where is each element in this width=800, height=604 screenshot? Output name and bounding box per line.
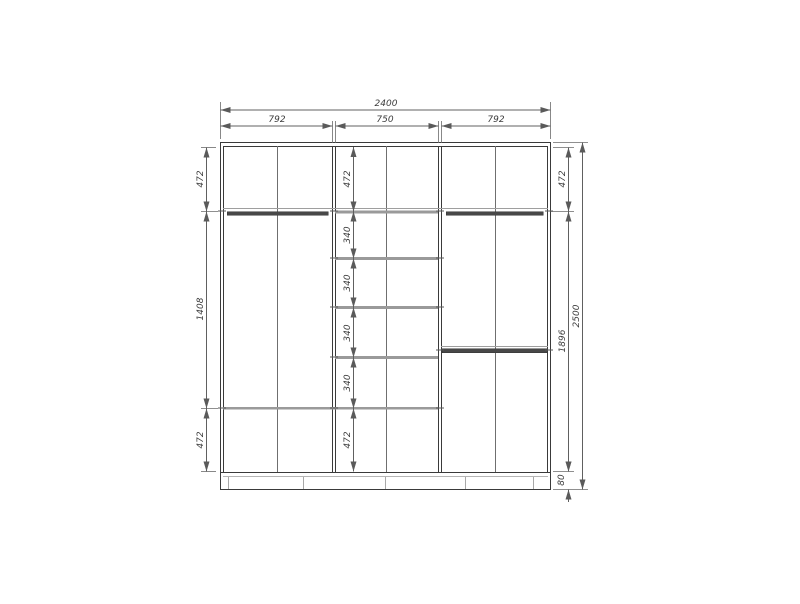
dim-left-section-width-label: 792 (268, 115, 285, 125)
dim-plinth-height-label: 80 (557, 474, 567, 486)
dim-center-6-label: 472 (343, 431, 353, 448)
middle-shelf-1 (335, 211, 438, 214)
cabinet-body-outline (220, 142, 551, 490)
dim-middle-section-width-label: 750 (376, 115, 393, 125)
dim-overall-width-label: 2400 (375, 99, 398, 109)
plinth-feet-ticks (229, 477, 534, 489)
dimension-center-column: 472 340 340 340 340 472 (343, 147, 354, 472)
dim-right-middle-label: 1896 (558, 329, 568, 352)
shelves-and-rods (223, 209, 548, 410)
right-mid-rod (442, 349, 547, 353)
dim-right-section-width-label: 792 (487, 115, 504, 125)
middle-shelf-2 (335, 257, 438, 260)
dimension-left-column: 472 1408 472 (196, 148, 218, 472)
dimension-overall-height: 2500 (572, 143, 583, 490)
panel-joint-ticks (218, 211, 553, 408)
dim-center-5-label: 340 (343, 374, 353, 391)
dimension-top-width: 2400 792 750 792 (221, 99, 551, 143)
left-hanging-rod (227, 212, 328, 216)
dim-left-bottom-label: 472 (196, 431, 206, 448)
dim-overall-height-label: 2500 (572, 304, 582, 327)
middle-shelf-3 (335, 306, 438, 309)
dim-left-top-label: 472 (196, 170, 206, 187)
dim-right-top-label: 472 (558, 170, 568, 187)
drawing-canvas: 2400 792 750 792 472 1408 472 472 340 34… (0, 0, 800, 600)
right-hanging-rod (446, 212, 543, 216)
dim-center-1-label: 472 (343, 170, 353, 187)
dim-center-4-label: 340 (343, 324, 353, 341)
dim-left-middle-label: 1408 (196, 297, 206, 320)
dim-center-3-label: 340 (343, 274, 353, 291)
wardrobe-front-elevation-drawing: 2400 792 750 792 472 1408 472 472 340 34… (0, 0, 800, 600)
dim-center-2-label: 340 (343, 226, 353, 243)
middle-shelf-4 (335, 356, 438, 359)
